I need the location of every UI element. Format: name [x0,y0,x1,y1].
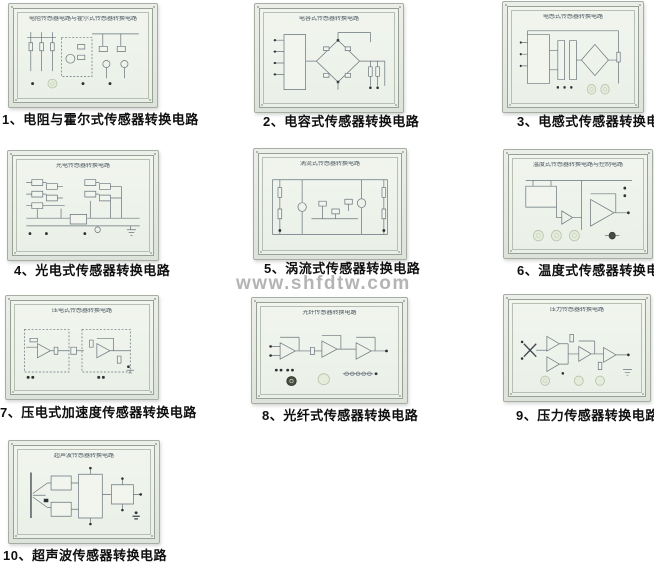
capacitive-bridge-schematic-icon [266,25,392,101]
panel-draw-area: 电容式传感器转换电路 [263,12,395,104]
fiber-optic-schematic-icon [263,319,396,392]
panel-draw-area: 电感式传感器转换电路 [511,10,635,104]
panel-caption-10: 10、超声波传感器转换电路 [3,548,167,563]
panel-plate: 温度式传感器转换电路与控制电路 [508,154,648,254]
eddy-current-schematic-icon [265,170,395,248]
resistance-hall-schematic-icon [20,25,146,96]
panel-caption-1: 1、电阻与霍尔式传感器转换电路 [2,112,199,127]
panel-title: 压力传感器转换电路 [513,307,641,314]
panel-title: 电容式传感器转换电路 [264,16,394,23]
panel-draw-area: 电阻传感器电路与霍尔式传感器转换电路 [17,12,149,99]
circuit-panel-8: 光纤传感器转换电路 [251,297,408,404]
panel-draw-area: 压力传感器转换电路 [512,303,642,393]
catalog-page: { "page": { "watermark": "www.shfdtw.com… [0,0,654,563]
panel-title: 电感式传感器转换电路 [512,14,634,21]
circuit-panel-5: 涡流式传感器转换电路 [253,148,407,260]
panel-draw-area: 光电传感器转换电路 [16,159,150,252]
panel-plate: 电阻传感器电路与霍尔式传感器转换电路 [13,8,153,103]
panel-draw-area: 光纤传感器转换电路 [260,306,399,395]
panel-title: 光电传感器转换电路 [17,163,149,170]
temperature-schematic-icon [515,171,641,247]
circuit-panel-3: 电感式传感器转换电路 [502,1,644,113]
photoelectric-schematic-icon [19,172,147,249]
site-watermark: www.shfdtw.com [236,273,411,295]
panel-draw-area: 涡流式传感器转换电路 [262,157,398,251]
panel-draw-area: 温度式传感器转换电路与控制电路 [512,158,644,250]
circuit-panel-7: 压电式传感器转换电路 [5,295,159,400]
panel-plate: 光纤传感器转换电路 [256,302,403,399]
panel-plate: 电容式传感器转换电路 [259,8,399,108]
panel-caption-2: 2、电容式传感器转换电路 [263,114,419,129]
panel-caption-3: 3、电感式传感器转换电路 [517,114,654,129]
panel-plate: 光电传感器转换电路 [12,155,154,256]
circuit-panel-4: 光电传感器转换电路 [7,150,159,261]
panel-caption-8: 8、光纤式传感器转换电路 [262,408,418,423]
panel-caption-7: 7、压电式加速度传感器转换电路 [0,405,197,420]
panel-title: 电阻传感器电路与霍尔式传感器转换电路 [18,16,148,23]
circuit-panel-9: 压力传感器转换电路 [503,294,651,402]
circuit-panel-1: 电阻传感器电路与霍尔式传感器转换电路 [8,3,158,108]
pressure-schematic-icon [515,316,639,390]
panel-draw-area: 超声波传感器转换电路 [17,449,151,535]
panel-plate: 压力传感器转换电路 [508,299,646,397]
panel-draw-area: 压电式传感器转换电路 [14,304,150,391]
panel-title: 光纤传感器转换电路 [261,310,398,317]
panel-caption-6: 6、温度式传感器转换电路 [517,263,654,278]
inductive-bridge-schematic-icon [514,23,632,101]
circuit-panel-10: 超声波传感器转换电路 [8,440,160,544]
panel-plate: 涡流式传感器转换电路 [258,153,402,255]
panel-plate: 压电式传感器转换电路 [10,300,154,395]
circuit-panel-2: 电容式传感器转换电路 [254,3,404,113]
panel-caption-4: 4、光电式传感器转换电路 [14,263,170,278]
panel-caption-9: 9、压力传感器转换电路 [516,408,654,423]
ultrasonic-block-diagram-icon [20,462,148,532]
panel-title: 涡流式传感器转换电路 [263,161,397,168]
piezoelectric-schematic-icon [17,317,147,388]
panel-title: 压电式传感器转换电路 [15,308,149,315]
panel-title: 温度式传感器转换电路与控制电路 [513,162,643,169]
panel-plate: 超声波传感器转换电路 [13,445,155,539]
panel-title: 超声波传感器转换电路 [18,453,150,460]
circuit-panel-6: 温度式传感器转换电路与控制电路 [503,149,653,259]
panel-plate: 电感式传感器转换电路 [507,6,639,108]
